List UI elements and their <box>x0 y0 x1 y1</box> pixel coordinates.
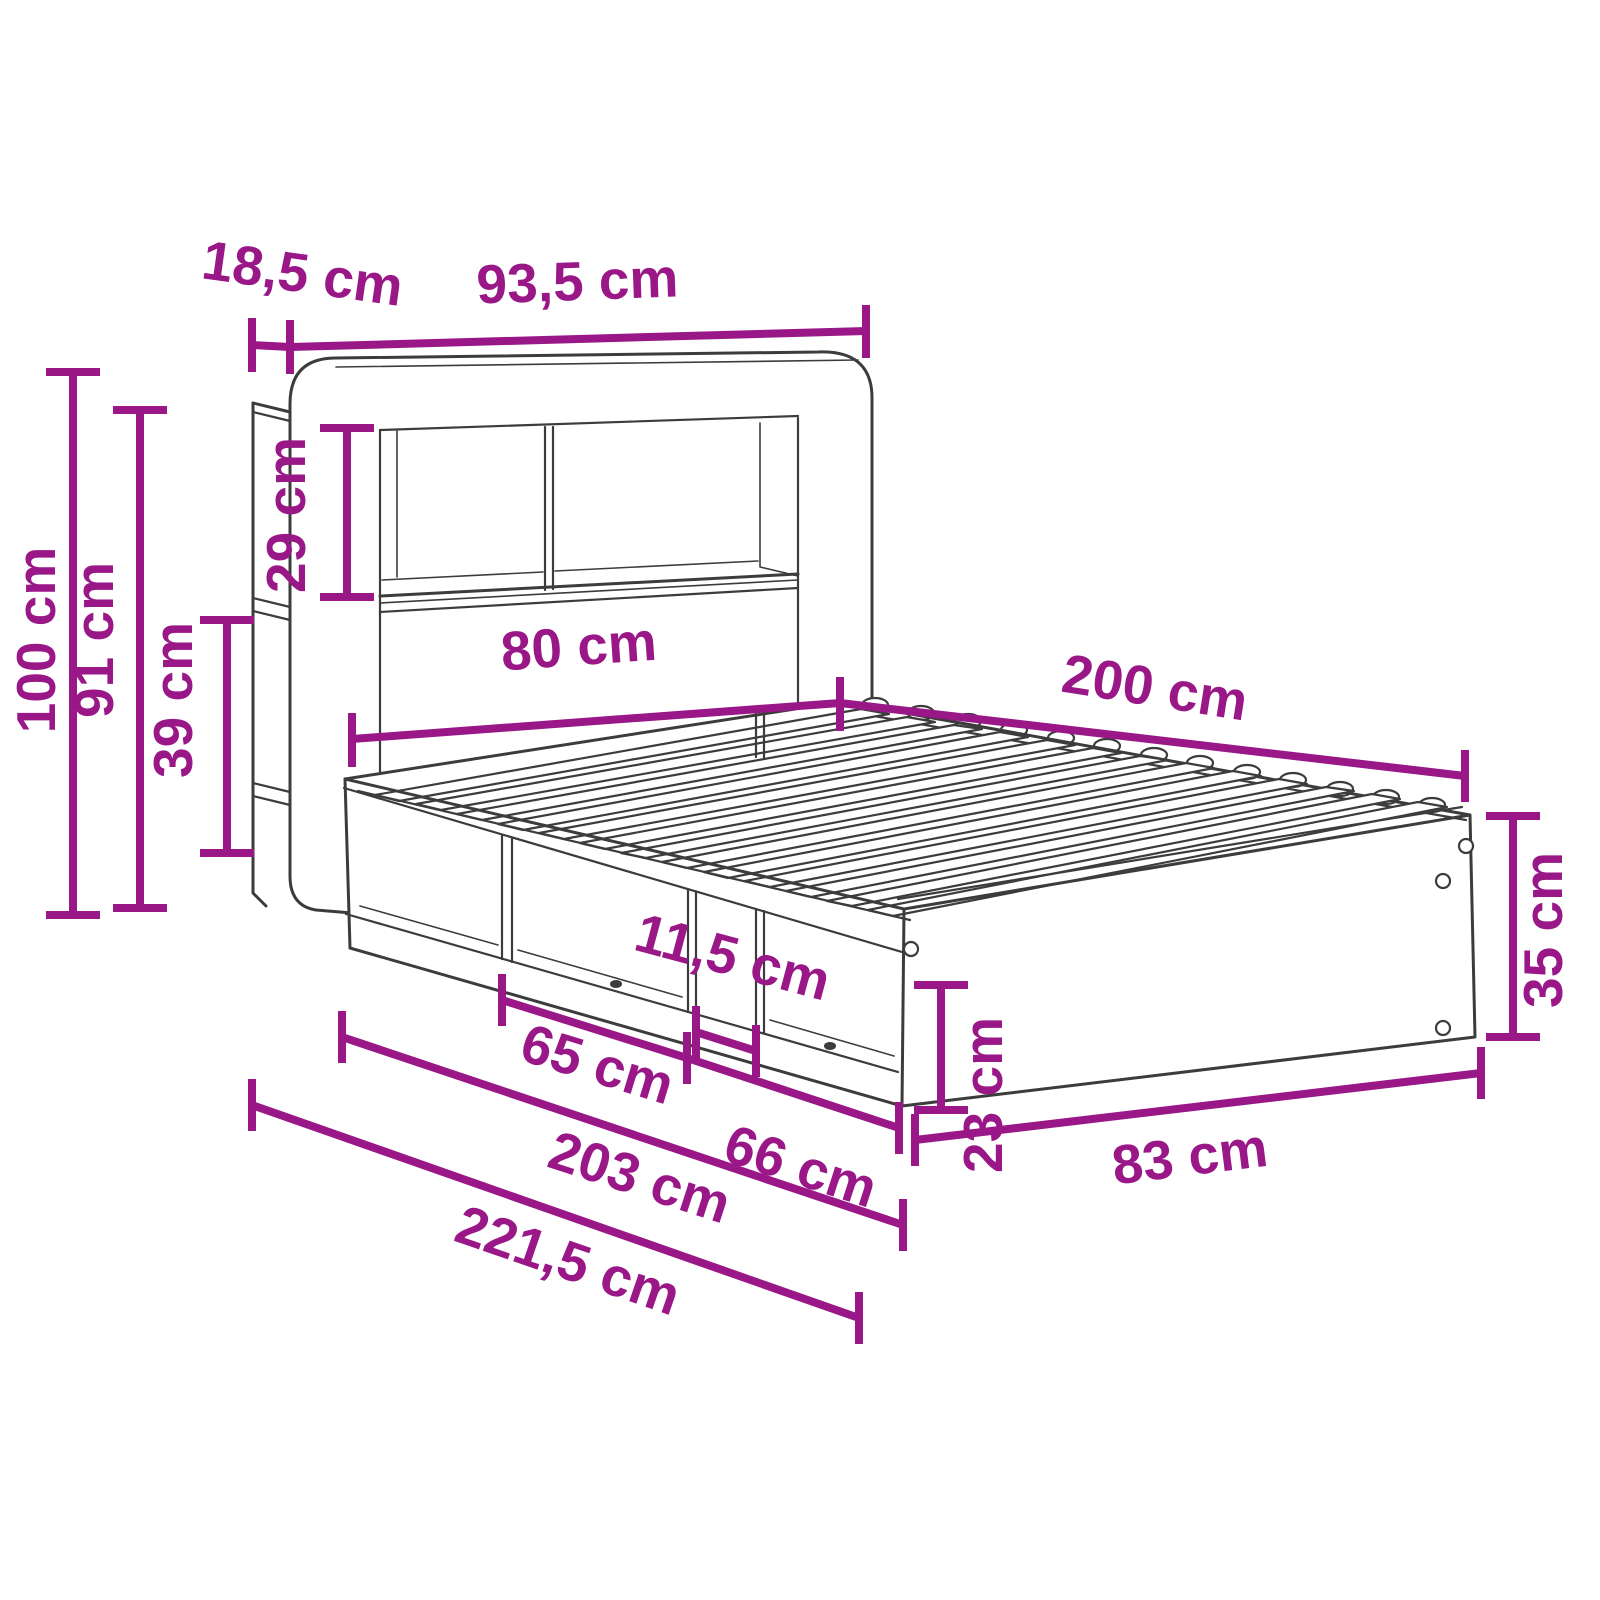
dim-label-side-shelf-depth: 18,5 cm <box>198 228 406 317</box>
screw-hole <box>904 942 918 956</box>
dim-label-foot-panel-width: 83 cm <box>1109 1116 1271 1197</box>
dim-label-storage-opening-height: 23 cm <box>952 1017 1014 1173</box>
dim-label-lower-shelf-height: 39 cm <box>142 622 204 778</box>
dim-label-bed-length: 200 cm <box>1058 642 1252 732</box>
dim-label-base-height: 35 cm <box>1512 852 1574 1008</box>
plinth-hole <box>610 980 622 988</box>
dim-label-upper-shelf-height: 29 cm <box>255 437 317 593</box>
dim-label-total-height: 100 cm <box>5 547 67 734</box>
dim-label-cubby-right-width: 66 cm <box>717 1112 884 1219</box>
dim-lower-shelf-height: 39 cm <box>142 620 254 853</box>
screw-hole <box>1436 1021 1450 1035</box>
screw-hole <box>1436 874 1450 888</box>
bed-dimension-diagram: 18,5 cm 93,5 cm 100 cm 91 cm 39 cm <box>0 0 1600 1600</box>
dim-label-headboard-height: 91 cm <box>63 562 125 718</box>
dim-label-headboard-width: 93,5 cm <box>475 247 679 316</box>
plinth-hole <box>824 1042 836 1050</box>
screw-hole <box>1459 839 1473 853</box>
dim-label-bed-width: 80 cm <box>499 610 659 683</box>
dim-side-shelf-depth: 18,5 cm <box>198 228 406 374</box>
diagram-canvas: 18,5 cm 93,5 cm 100 cm 91 cm 39 cm <box>0 0 1600 1600</box>
dim-base-height: 35 cm <box>1486 816 1574 1037</box>
dim-total-length: 221,5 cm <box>252 1079 859 1344</box>
